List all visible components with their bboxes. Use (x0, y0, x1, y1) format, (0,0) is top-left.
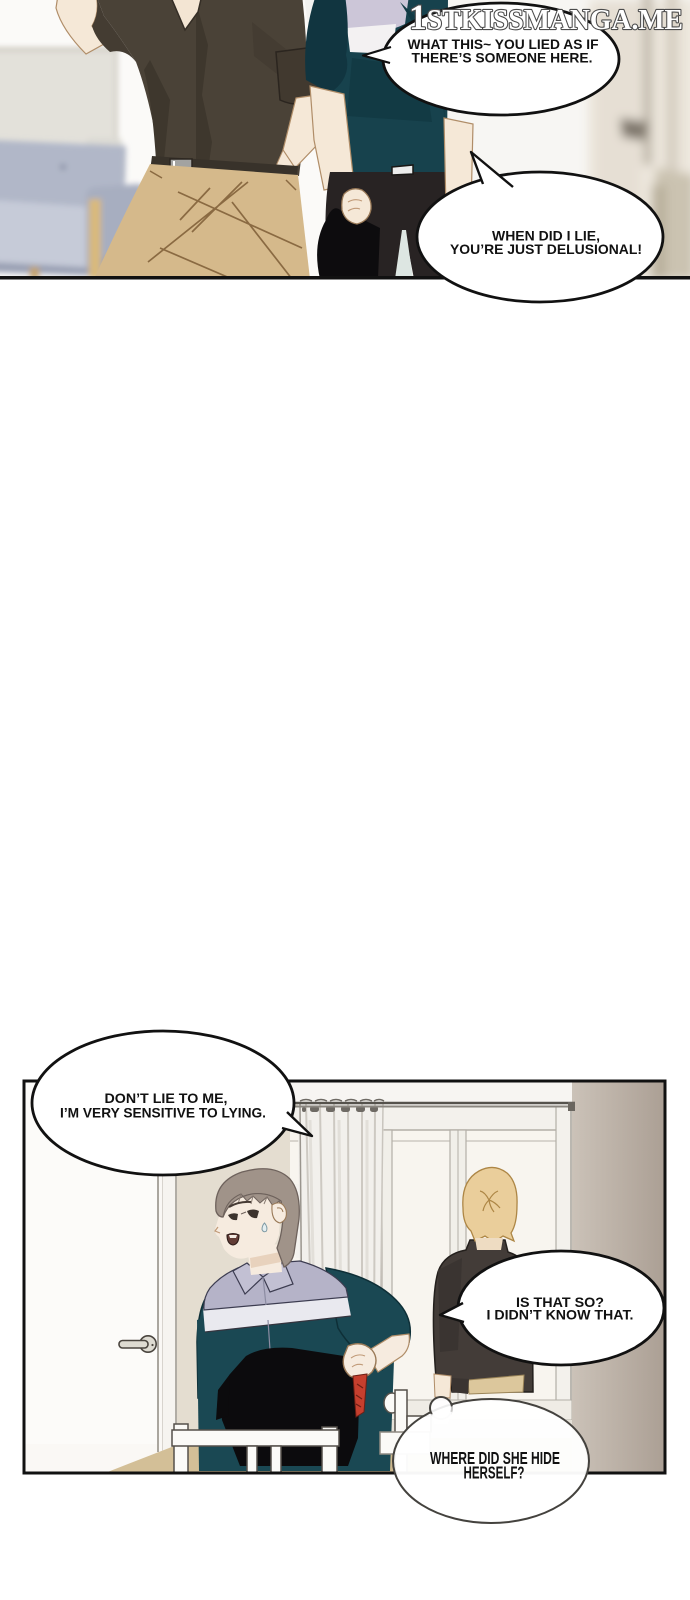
svg-text:I’M VERY SENSITIVE TO LYING.: I’M VERY SENSITIVE TO LYING. (60, 1105, 266, 1121)
svg-text:I DIDN’T KNOW THAT.: I DIDN’T KNOW THAT. (487, 1308, 634, 1323)
svg-text:1STKISSMANGA.ME: 1STKISSMANGA.ME (409, 0, 683, 37)
svg-text:YOU’RE JUST DELUSIONAL!: YOU’RE JUST DELUSIONAL! (450, 241, 642, 257)
svg-text:THERE’S SOMEONE HERE.: THERE’S SOMEONE HERE. (412, 50, 593, 66)
svg-text:HERSELF?: HERSELF? (464, 1463, 525, 1483)
